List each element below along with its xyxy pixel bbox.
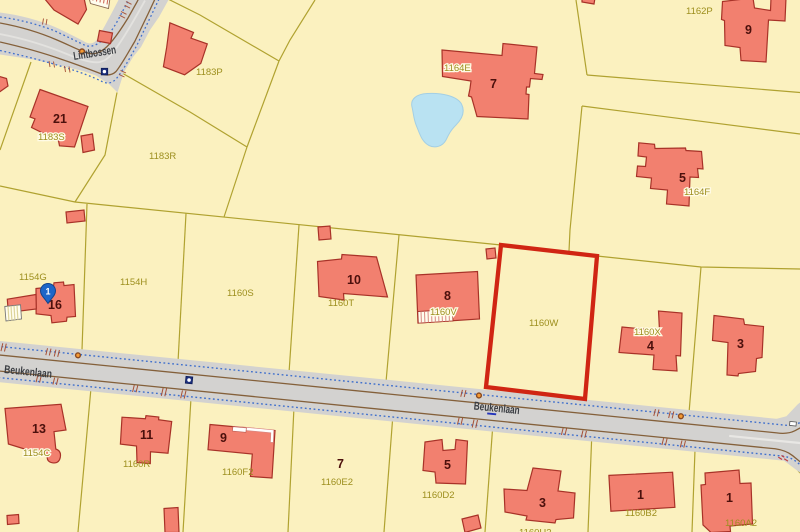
svg-text:7: 7	[337, 457, 344, 471]
svg-text:1160D2: 1160D2	[422, 490, 455, 501]
svg-text:1183R: 1183R	[149, 151, 176, 162]
svg-text:7: 7	[490, 77, 497, 91]
svg-text:9: 9	[745, 23, 752, 37]
svg-text:1160X: 1160X	[634, 327, 661, 338]
svg-text:1160W: 1160W	[529, 318, 558, 329]
svg-text:1160B2: 1160B2	[625, 508, 657, 519]
svg-text:1160A2: 1160A2	[725, 518, 757, 529]
svg-text:1160E2: 1160E2	[321, 477, 353, 488]
svg-text:1: 1	[726, 491, 733, 505]
svg-text:9: 9	[220, 431, 227, 445]
svg-text:1: 1	[45, 287, 50, 297]
svg-text:1183S: 1183S	[38, 132, 65, 143]
svg-text:1164F: 1164F	[684, 187, 710, 198]
svg-text:1160H2: 1160H2	[519, 528, 552, 532]
svg-text:1: 1	[637, 488, 644, 502]
svg-text:1154C: 1154C	[23, 448, 50, 459]
svg-text:5: 5	[679, 171, 686, 185]
svg-text:13: 13	[32, 422, 46, 436]
svg-text:5: 5	[444, 458, 451, 472]
svg-text:1160S: 1160S	[227, 288, 254, 299]
svg-text:1160T: 1160T	[328, 298, 354, 309]
svg-text:1154H: 1154H	[120, 277, 147, 288]
svg-text:3: 3	[737, 337, 744, 351]
svg-text:1164E: 1164E	[444, 63, 471, 74]
svg-text:1160V: 1160V	[430, 307, 457, 318]
svg-text:1160R: 1160R	[123, 459, 150, 470]
svg-text:1160F2: 1160F2	[222, 467, 254, 478]
svg-text:21: 21	[53, 112, 67, 126]
svg-text:10: 10	[347, 273, 361, 287]
svg-text:8: 8	[444, 289, 451, 303]
svg-text:4: 4	[647, 339, 654, 353]
svg-text:1154G: 1154G	[19, 272, 47, 283]
svg-text:11: 11	[140, 428, 153, 442]
svg-text:3: 3	[539, 496, 546, 510]
svg-text:1162P: 1162P	[686, 6, 713, 17]
svg-text:1183P: 1183P	[196, 67, 223, 78]
